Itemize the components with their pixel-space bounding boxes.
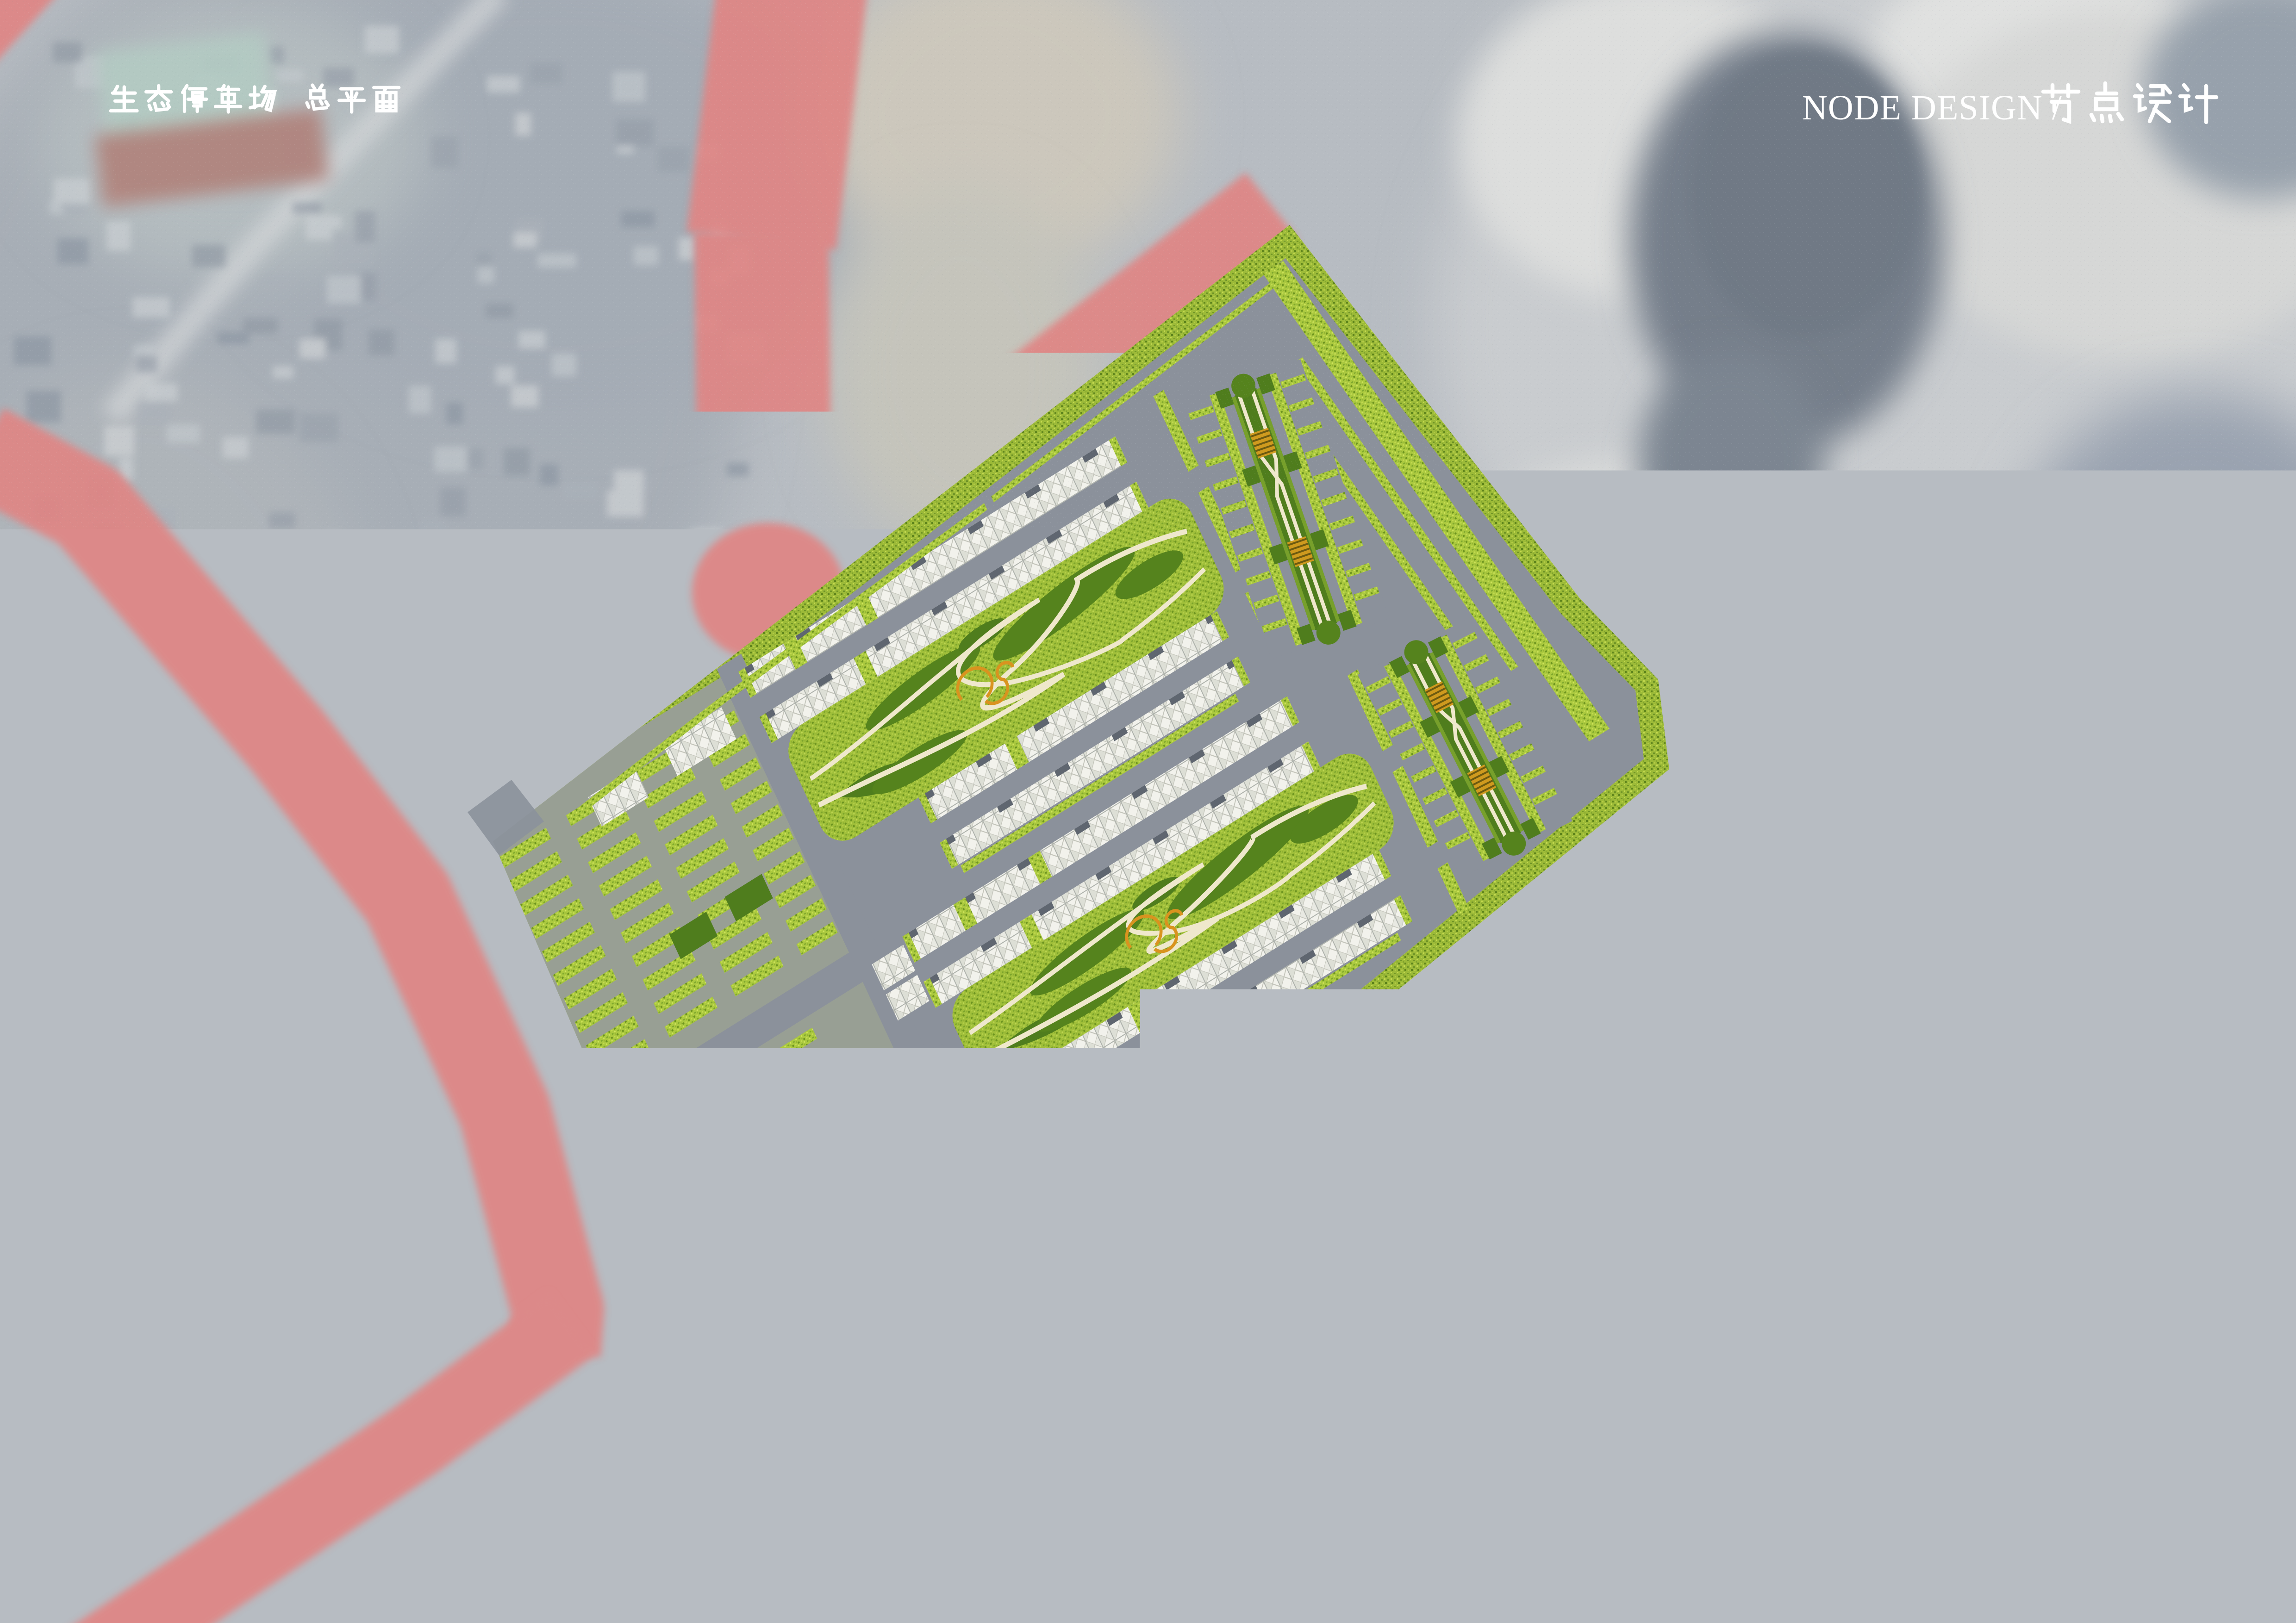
svg-text:NODE DESIGN /: NODE DESIGN / (1802, 88, 2062, 127)
